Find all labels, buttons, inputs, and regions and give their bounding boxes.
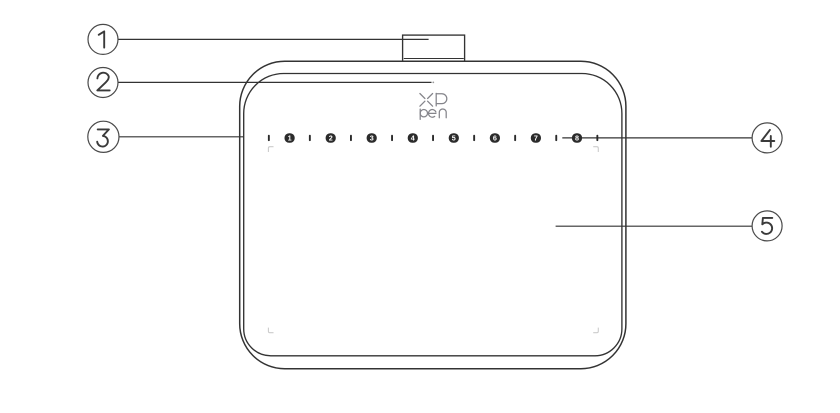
- svg-text:2: 2: [329, 134, 333, 143]
- svg-text:3: 3: [370, 134, 374, 143]
- svg-text:6: 6: [493, 134, 497, 143]
- svg-text:7: 7: [534, 134, 538, 143]
- svg-text:1: 1: [288, 134, 292, 143]
- svg-text:8: 8: [575, 134, 579, 143]
- svg-text:4: 4: [411, 134, 415, 143]
- svg-text:5: 5: [452, 134, 456, 143]
